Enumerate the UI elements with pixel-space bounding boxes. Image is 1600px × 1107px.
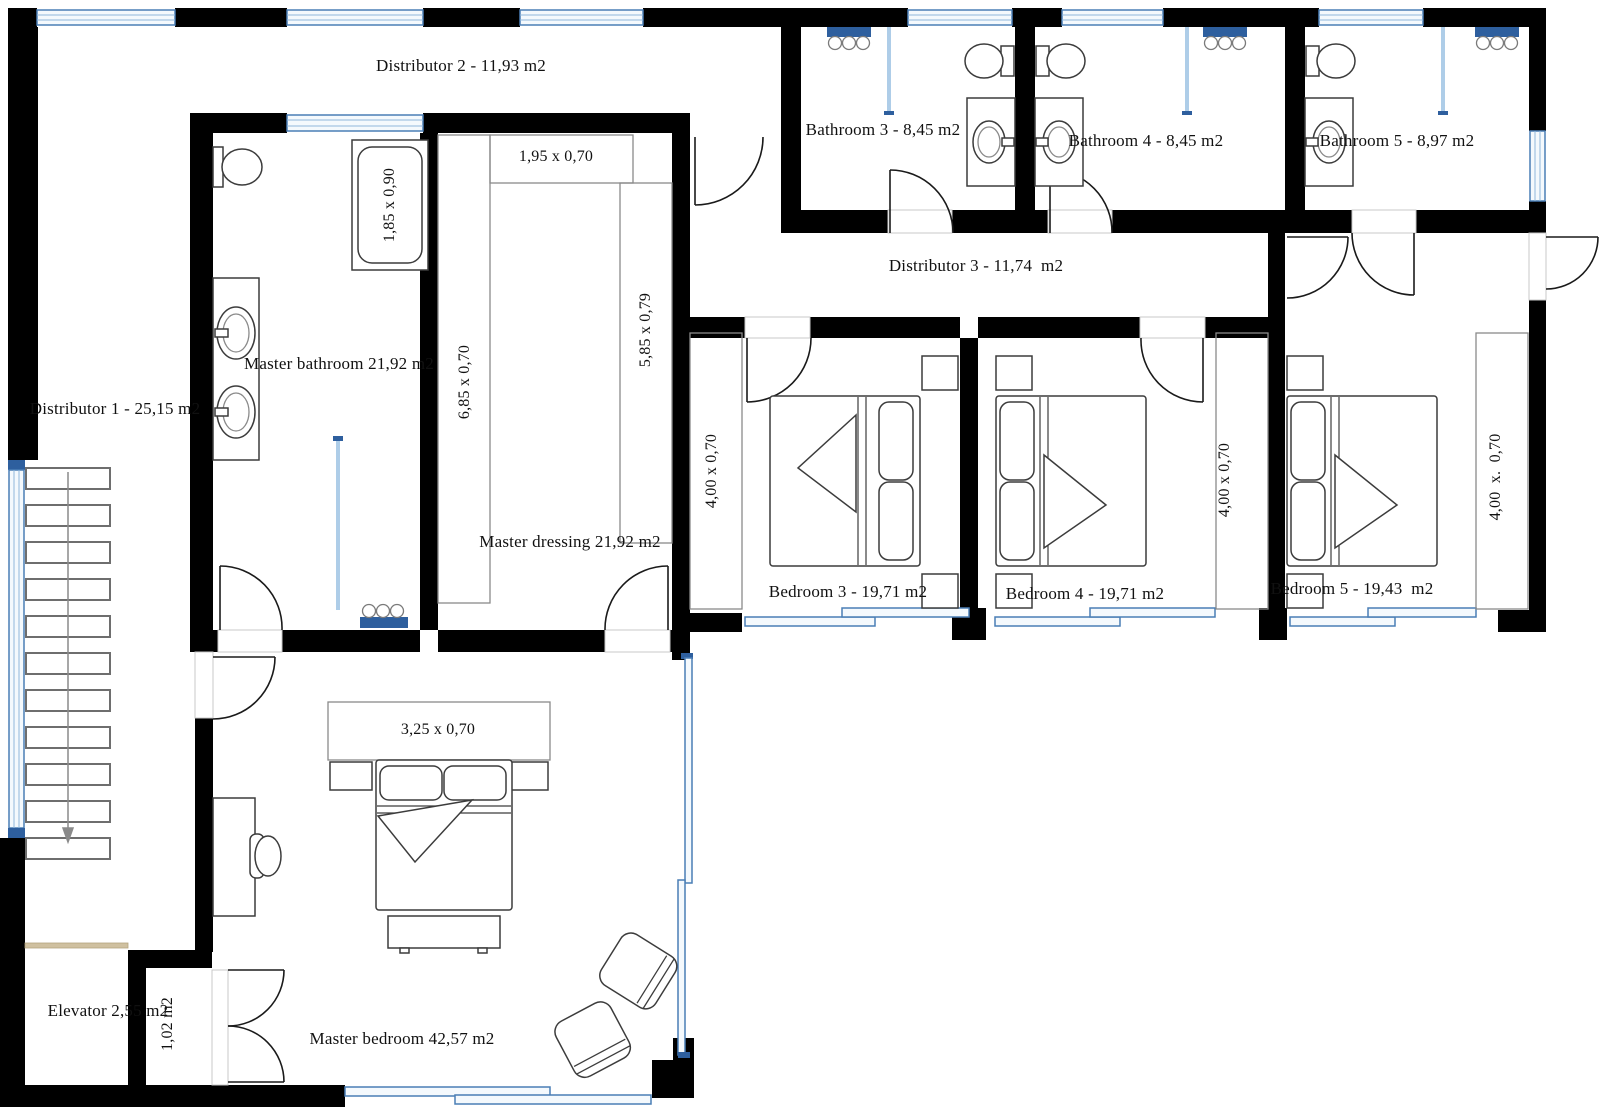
double-door-master-bedroom [228, 970, 284, 1082]
bed-bedroom3 [770, 356, 958, 608]
toilet-bathroom5 [1306, 44, 1355, 78]
nightstand [922, 356, 958, 390]
bed-bench [388, 916, 500, 948]
door-master-bedroom [213, 657, 275, 719]
label-wardrobe-bedroom3: 4,00 x 0,70 [703, 434, 721, 508]
label-dressing-right-wardrobe: 5,85 x 0,79 [637, 293, 655, 367]
label-master-bedroom: Master bedroom 42,57 m2 [310, 1029, 495, 1049]
window-top-1 [37, 10, 175, 25]
elevator-door [25, 943, 128, 948]
window-top-6 [1319, 10, 1423, 25]
bed-bedroom5 [1287, 356, 1437, 608]
shower-bathroom3 [827, 27, 894, 115]
label-bedroom4: Bedroom 4 - 19,71 m2 [1006, 584, 1164, 604]
label-wardrobe-bedroom4: 4,00 x 0,70 [1216, 443, 1234, 517]
toilet-master [213, 147, 262, 187]
door-distributor2-corridor [695, 137, 763, 205]
label-bathroom4: Bathroom 4 - 8,45 m2 [1069, 131, 1224, 151]
label-bedroom5: Bedroom 5 - 19,43 m2 [1271, 579, 1434, 599]
window-top-4 [908, 10, 1012, 25]
label-distributor2: Distributor 2 - 11,93 m2 [376, 56, 546, 76]
armchair-2 [551, 998, 635, 1082]
glass-wall-master-bedroom [678, 653, 693, 1058]
sliding-window-bedroom3 [745, 608, 969, 626]
bedroom3-furniture [690, 333, 958, 609]
nightstand [922, 574, 958, 608]
desk-chair [250, 834, 281, 878]
label-master-dressing: Master dressing 21,92 m2 [479, 532, 660, 552]
label-elevator: Elevator 2,55 m2 [48, 1001, 169, 1021]
sliding-window-bedroom5 [1290, 608, 1476, 626]
nightstand [330, 762, 372, 790]
window-top-3 [520, 10, 643, 25]
floor-plan-drawing [0, 0, 1600, 1107]
toilet-bathroom3 [965, 44, 1014, 78]
bathroom5-fixtures [1305, 27, 1519, 186]
door-master-bathroom [220, 566, 282, 630]
shower-master [333, 436, 408, 628]
door-bathroom5 [1352, 233, 1414, 295]
window-top-2 [287, 10, 423, 25]
door-bedroom4 [1141, 338, 1203, 402]
label-master-bathroom: Master bathroom 21,92 m2 [244, 354, 434, 374]
door-bedroom5-inner [1287, 237, 1348, 298]
window-top-5 [1062, 10, 1163, 25]
floor-plan: Distributor 2 - 11,93 m2 Bathroom 3 - 8,… [0, 0, 1600, 1107]
label-bedroom3: Bedroom 3 - 19,71 m2 [769, 582, 927, 602]
door-master-dressing [605, 566, 668, 630]
desk [213, 798, 255, 916]
door-terrace-right [1546, 237, 1598, 289]
shower-bathroom5 [1438, 27, 1519, 115]
bathroom3-fixtures [827, 27, 1015, 186]
door-bedroom3 [747, 338, 811, 402]
label-bathtub-size: 1,85 x 0,90 [381, 168, 399, 242]
bathroom4-fixtures [1035, 27, 1247, 186]
window-master-bathroom [287, 115, 423, 131]
sliding-window-bedroom4 [995, 608, 1215, 626]
sink-bathroom3 [967, 98, 1015, 186]
window-bathroom5 [1530, 131, 1545, 201]
label-distributor1: Distributor 1 - 25,15 m2 [30, 399, 201, 419]
master-bedroom-furniture [213, 702, 681, 1082]
bed-master [330, 760, 548, 953]
label-master-wardrobe: 3,25 x 0,70 [401, 721, 475, 739]
label-bathroom5: Bathroom 5 - 8,97 m2 [1320, 131, 1475, 151]
nightstand [1287, 356, 1323, 390]
label-wardrobe-bedroom5: 4,00 x. 0,70 [1487, 434, 1505, 521]
bed-bedroom4 [996, 356, 1146, 608]
label-bathroom3: Bathroom 3 - 8,45 m2 [806, 120, 961, 140]
shower-bathroom4 [1182, 27, 1247, 115]
window-stairwell [8, 460, 25, 838]
label-dressing-left-wardrobe: 6,85 x 0,70 [456, 345, 474, 419]
sliding-window-master-bedroom [345, 1087, 651, 1104]
nightstand [996, 356, 1032, 390]
staircase [26, 468, 110, 859]
label-closet102: 1,02 m2 [159, 997, 177, 1051]
label-dressing-top-wardrobe: 1,95 x 0,70 [519, 148, 593, 166]
toilet-bathroom4 [1036, 44, 1085, 78]
armchair-1 [595, 929, 681, 1014]
label-distributor3: Distributor 3 - 11,74 m2 [889, 256, 1063, 276]
